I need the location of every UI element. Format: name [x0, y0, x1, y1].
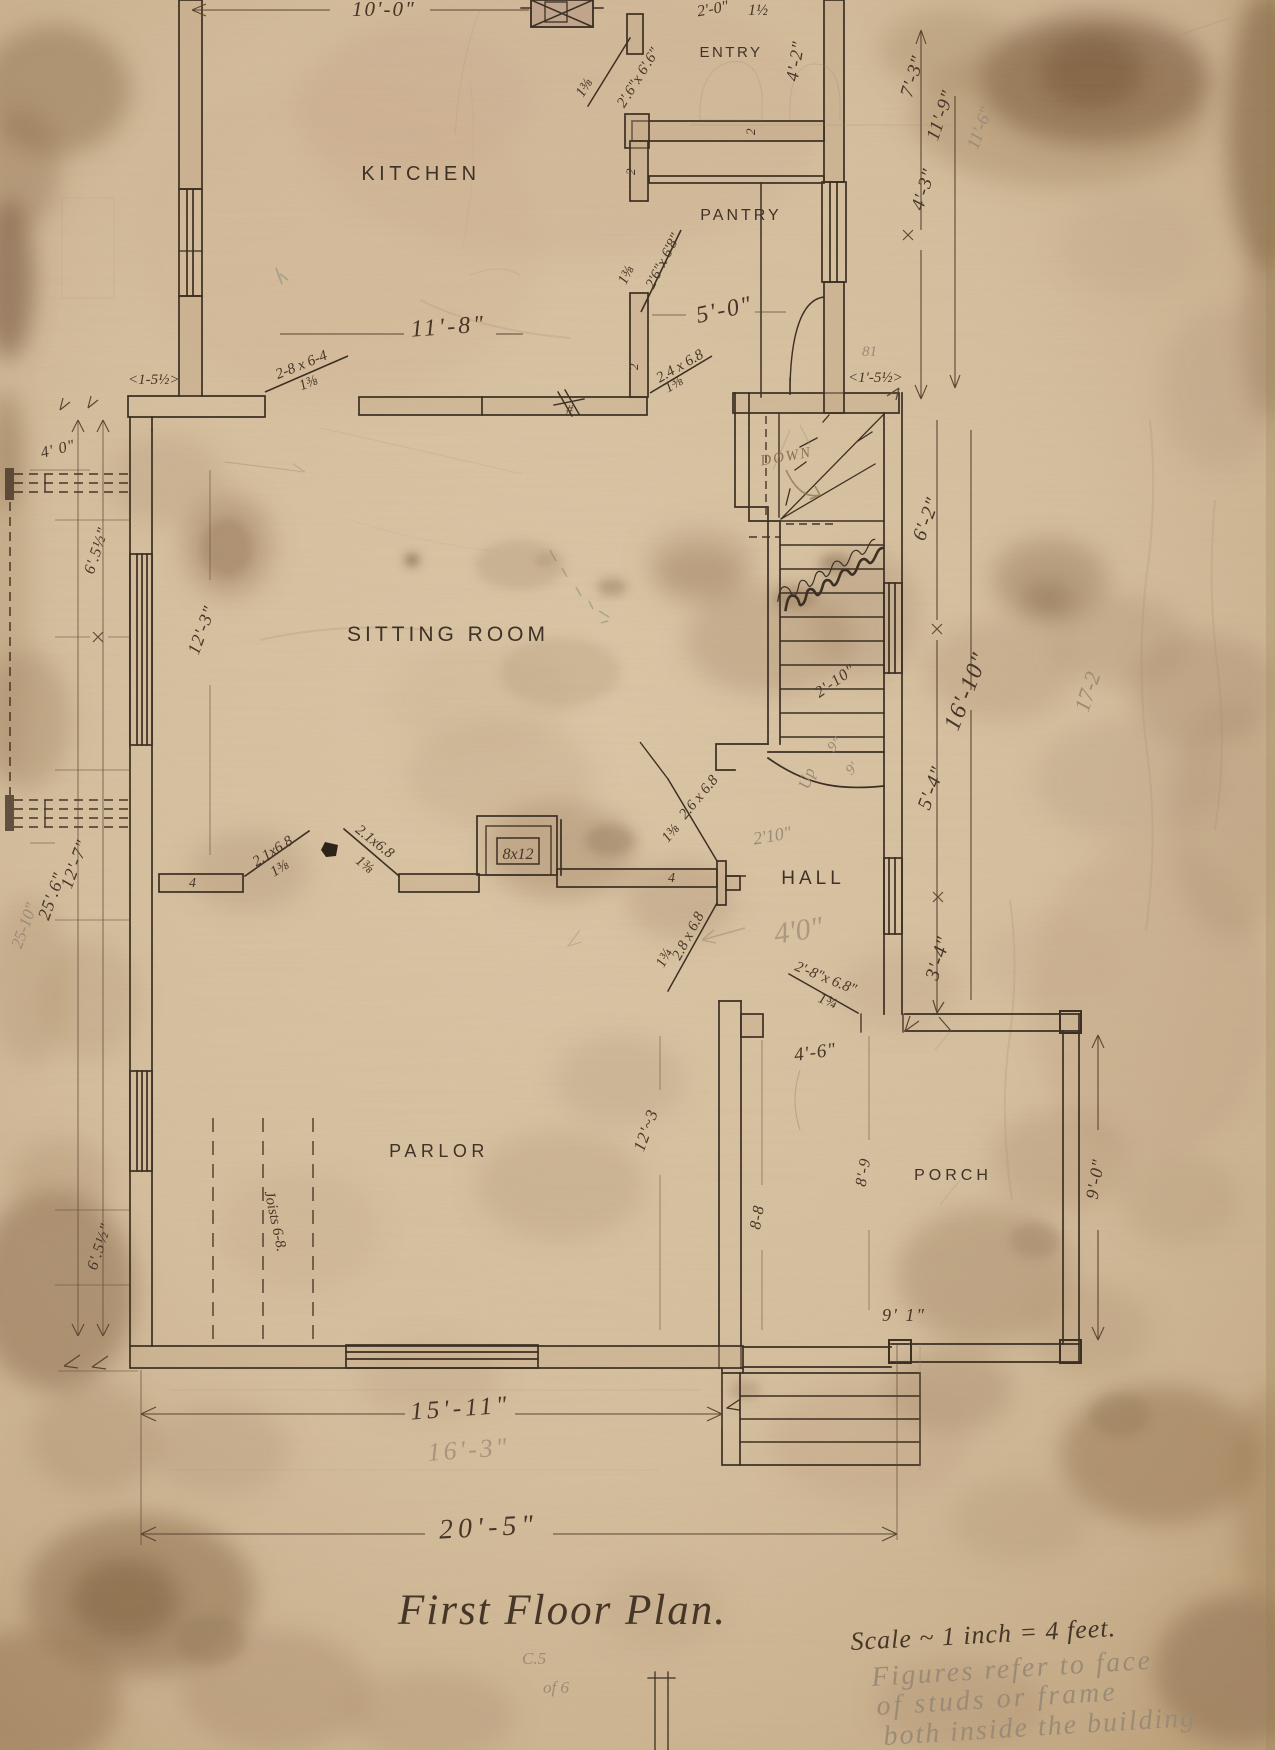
- svg-text:First Floor Plan.: First Floor Plan.: [397, 1587, 727, 1634]
- svg-text:2: 2: [626, 363, 641, 370]
- svg-text:9' 1": 9' 1": [882, 1305, 926, 1325]
- svg-text:16'-3": 16'-3": [427, 1432, 511, 1467]
- svg-text:PARLOR: PARLOR: [389, 1141, 489, 1161]
- svg-text:<1-5½>: <1-5½>: [128, 372, 180, 388]
- svg-text:C.5: C.5: [522, 1649, 546, 1668]
- svg-text:1½: 1½: [748, 2, 768, 19]
- svg-text:2: 2: [743, 128, 758, 135]
- svg-text:#: #: [566, 403, 574, 418]
- svg-text:81: 81: [862, 344, 877, 360]
- svg-text:KITCHEN: KITCHEN: [361, 163, 480, 185]
- svg-text:10'-0": 10'-0": [352, 0, 416, 21]
- svg-text:20'-5": 20'-5": [438, 1509, 539, 1545]
- svg-text:SITTING ROOM: SITTING ROOM: [347, 623, 549, 646]
- svg-text:ENTRY: ENTRY: [699, 44, 762, 61]
- svg-text:PORCH: PORCH: [914, 1167, 992, 1184]
- svg-text:8x12: 8x12: [502, 846, 533, 863]
- svg-text:11'-8": 11'-8": [410, 311, 487, 342]
- svg-text:2: 2: [623, 168, 638, 175]
- svg-text:4: 4: [668, 871, 675, 886]
- svg-text:PANTRY: PANTRY: [700, 207, 781, 224]
- svg-text:4: 4: [189, 876, 196, 891]
- svg-text:of 6: of 6: [543, 1678, 569, 1697]
- svg-text:<1'-5½>: <1'-5½>: [848, 370, 903, 386]
- svg-text:HALL: HALL: [781, 868, 845, 889]
